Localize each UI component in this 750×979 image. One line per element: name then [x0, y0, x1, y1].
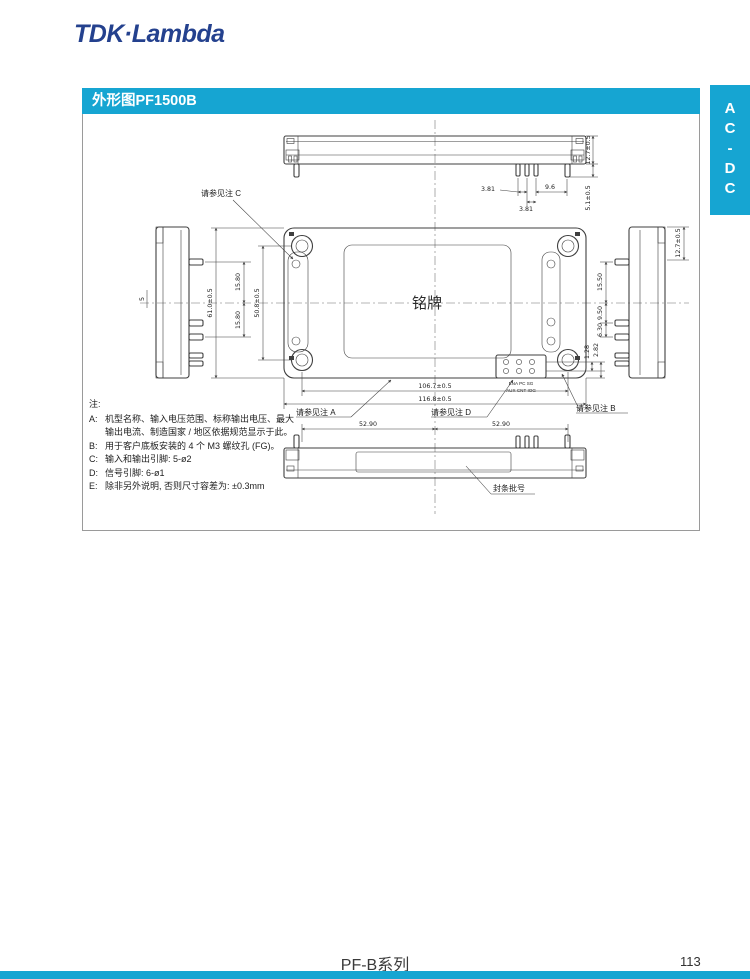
note-key: A: — [89, 413, 105, 440]
right-side-view — [615, 227, 665, 378]
dim-mount-height: 50.8±0.5 — [254, 288, 261, 317]
note-key: E: — [89, 480, 105, 494]
tdk-lambda-logo: TDK·Lambda — [74, 20, 225, 49]
seal-label: 封条批号 — [493, 483, 525, 493]
left-side-view: 5 — [139, 227, 203, 378]
dim-left-upper: 15.80 — [235, 273, 242, 291]
dim-pin-pitch-a: 3.81 — [481, 186, 495, 193]
right-view-dimensions: 15.50 9.50 6.30 12.7±0.5 — [597, 227, 689, 337]
notes-title: 注: — [89, 398, 294, 412]
dim-pin-length: 5.1±0.5 — [585, 185, 592, 210]
dim-pin-pitch-b: 3.81 — [519, 206, 533, 213]
nameplate-label: 铭牌 — [412, 295, 442, 312]
dim-edge-gap: 9.6 — [545, 184, 555, 191]
drawing-area: 3.81 9.6 3.81 12.7±0.5 5.1±0.5 请参见注 C — [82, 114, 700, 531]
dim-right-top: 15.50 — [597, 273, 604, 291]
note-text: 信号引脚: 6-ø1 — [105, 467, 294, 481]
note-key: D: — [89, 467, 105, 481]
note-text: 用于客户底板安装的 4 个 M3 螺纹孔 (FG)。 — [105, 440, 294, 454]
connector-row1-label: ENA PC SG — [509, 381, 534, 386]
note-b-label: 请参见注 B — [576, 403, 616, 413]
dim-left-lower: 15.80 — [235, 311, 242, 329]
note-item-a: A: 机型名称、输入电压范围、标称输出电压、最大输出电流、制造国家 / 地区依据… — [89, 413, 294, 440]
note-a-label: 请参见注 A — [296, 407, 336, 417]
footer-page-number: 113 — [680, 954, 701, 969]
dim-body-width: 116.8±0.5 — [418, 396, 451, 403]
note-item-b: B: 用于客户底板安装的 4 个 M3 螺纹孔 (FG)。 — [89, 440, 294, 454]
dim-right-mid: 9.50 — [597, 306, 604, 320]
note-text: 机型名称、输入电压范围、标称输出电压、最大输出电流、制造国家 / 地区依据规范显… — [105, 413, 294, 440]
note-text: 除非另外说明, 否则尺寸容差为: ±0.3mm — [105, 480, 294, 494]
connector-row2-label: AUX CNT IOG — [506, 388, 536, 393]
note-key: C: — [89, 453, 105, 467]
dim-sig-b: 2.82 — [593, 343, 600, 357]
footer-accent-bar — [0, 971, 750, 979]
dim-bottom-left: 52.90 — [359, 421, 377, 428]
note-item-d: D: 信号引脚: 6-ø1 — [89, 467, 294, 481]
note-d-label: 请参见注 D — [431, 407, 471, 417]
dim-body-height: 61.0±0.5 — [207, 288, 214, 317]
dim-mount-width: 106.7±0.5 — [418, 383, 451, 390]
note-item-c: C: 输入和输出引脚: 5-ø2 — [89, 453, 294, 467]
notes-block: 注: A: 机型名称、输入电压范围、标称输出电压、最大输出电流、制造国家 / 地… — [89, 398, 294, 494]
front-view-dimensions: 3.81 9.6 3.81 12.7±0.5 5.1±0.5 — [481, 135, 598, 213]
dim-left-depth: 5 — [139, 297, 146, 301]
note-c-callout: 请参见注 C — [201, 188, 293, 259]
dim-height-side: 12.7±0.5 — [675, 228, 682, 257]
section-title: 外形图PF1500B — [82, 88, 700, 114]
note-c-label: 请参见注 C — [201, 188, 241, 198]
dim-sig-a: 1.28 — [584, 345, 591, 359]
note-text: 输入和输出引脚: 5-ø2 — [105, 453, 294, 467]
note-key: B: — [89, 440, 105, 454]
side-tab-ac-dc: AC-DC — [710, 85, 750, 215]
dim-right-low: 6.30 — [597, 323, 604, 337]
outline-drawing-section: 外形图PF1500B — [82, 88, 700, 531]
dim-bottom-right: 52.90 — [492, 421, 510, 428]
dim-height-front: 12.7±0.5 — [585, 135, 592, 164]
note-item-e: E: 除非另外说明, 否则尺寸容差为: ±0.3mm — [89, 480, 294, 494]
